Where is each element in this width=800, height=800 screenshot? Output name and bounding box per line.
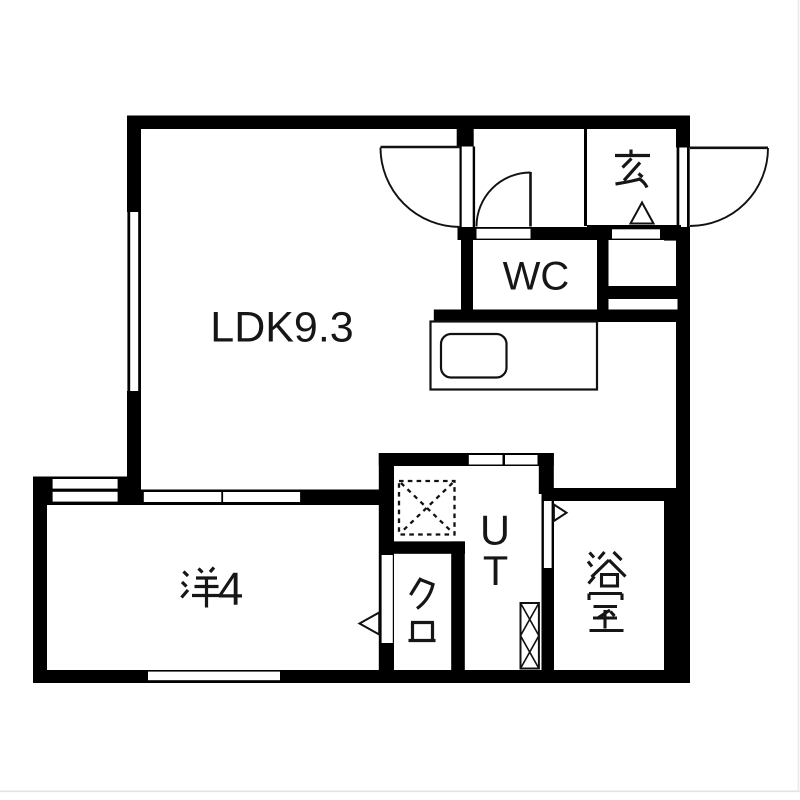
svg-text:LDK9.3: LDK9.3 bbox=[210, 304, 353, 352]
svg-text:T: T bbox=[483, 547, 508, 594]
svg-text:WC: WC bbox=[503, 255, 570, 299]
svg-text:4: 4 bbox=[218, 563, 244, 615]
